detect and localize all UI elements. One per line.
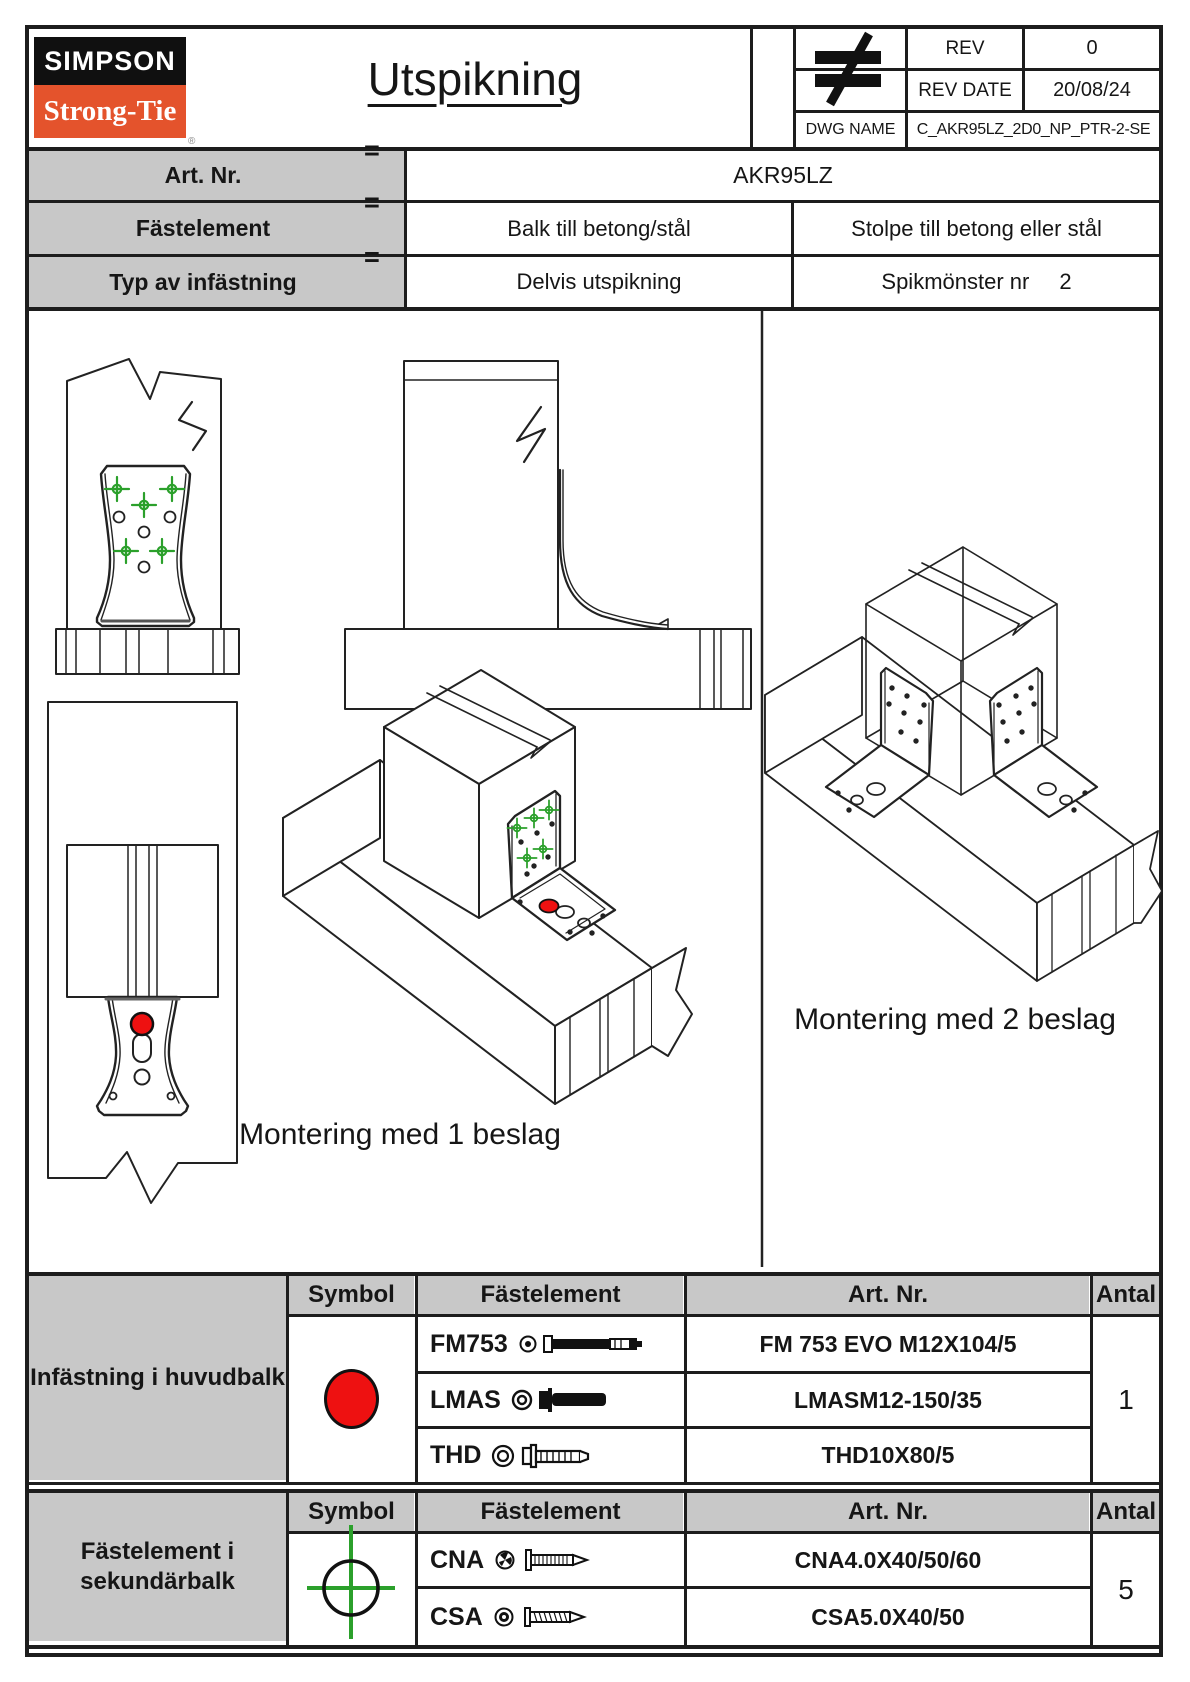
fastener-row-cna: CNA (418, 1534, 683, 1586)
rev-date-value: 20/08/24 (1025, 71, 1159, 110)
caption-two-brackets: Montering med 2 beslag (780, 1003, 1130, 1037)
rev-value: 0 (1025, 29, 1159, 68)
header-divider (750, 29, 753, 147)
strongtie-logo: Strong-Tie (34, 85, 186, 138)
simpson-logo: SIMPSON (34, 37, 186, 85)
art-nr-label: Art. Nr. (29, 151, 377, 200)
type-equals: = (364, 232, 394, 282)
table2-row-label: Fästelement i sekundärbalk (29, 1493, 286, 1641)
fm753-art-nr: FM 753 EVO M12X104/5 (687, 1317, 1089, 1371)
table1-art-header: Art. Nr. (687, 1276, 1089, 1314)
fastener-value-left: Balk till betong/stål (407, 203, 791, 254)
table2-qty-header: Antal (1093, 1493, 1159, 1531)
art-nr-equals: = (364, 127, 394, 176)
green-crosshair-icon (303, 1521, 399, 1643)
technical-drawing (28, 311, 1163, 1267)
t2-bottom-border (29, 1645, 1159, 1649)
thd-art-nr: THD10X80/5 (687, 1429, 1089, 1482)
table2-art-header: Art. Nr. (687, 1493, 1089, 1531)
table2-qty-value: 5 (1093, 1534, 1159, 1645)
registered-mark: ® (188, 136, 195, 147)
fm753-bolt-icon (518, 1328, 678, 1360)
nail-pattern-label: Spikmönster nr (881, 269, 1029, 295)
t1-bottom-border (29, 1482, 1159, 1485)
fastener-value-right: Stolpe till betong eller stål (794, 203, 1159, 254)
lmas-anchor-icon (511, 1383, 671, 1417)
fastener-row-csa: CSA (418, 1589, 683, 1645)
bolt-position-marker (131, 1013, 153, 1035)
table1-qty-value: 1 (1093, 1317, 1159, 1482)
fastener-row-fm753: FM753 (418, 1317, 683, 1371)
table1-qty-header: Antal (1093, 1276, 1159, 1314)
cna-nail-icon (494, 1544, 654, 1576)
dwg-name-label: DWG NAME (796, 113, 905, 147)
csa-art-nr: CSA5.0X40/50 (687, 1589, 1089, 1645)
csa-screw-icon (493, 1601, 653, 1633)
front-view (56, 359, 239, 674)
lmas-art-nr: LMASM12-150/35 (687, 1374, 1089, 1426)
isometric-two-brackets (765, 547, 1162, 981)
bottom-view (48, 702, 237, 1203)
cna-art-nr: CNA4.0X40/50/60 (687, 1534, 1089, 1586)
thd-name: THD (430, 1441, 481, 1470)
caption-one-bracket: Montering med 1 beslag (230, 1118, 570, 1152)
fastener-row-thd: THD (418, 1429, 683, 1482)
art-nr-value: AKR95LZ (407, 151, 1159, 200)
nail-pattern-number: 2 (1059, 269, 1071, 295)
drawing-sheet: SIMPSON Strong-Tie ® Utspikning REV 0 RE… (0, 0, 1190, 1682)
thd-screw-icon (491, 1439, 651, 1473)
nail-pattern-cell: Spikmönster nr 2 (794, 257, 1159, 307)
bolt-position-marker-iso (540, 900, 559, 913)
dwg-name-value: C_AKR95LZ_2D0_NP_PTR-2-SE (908, 113, 1159, 147)
fastener-label: Fästelement (29, 203, 377, 254)
not-equal-icon (797, 30, 901, 108)
type-label: Typ av infästning (29, 257, 377, 307)
cna-name: CNA (430, 1546, 484, 1575)
fastener-equals: = (364, 178, 394, 229)
isometric-one-bracket (283, 670, 692, 1104)
page-title: Utspikning (205, 52, 745, 106)
side-view (345, 361, 751, 709)
red-circle-icon (324, 1369, 379, 1429)
rev-label: REV (908, 29, 1022, 68)
table1-symbol-header: Symbol (289, 1276, 414, 1314)
csa-name: CSA (430, 1603, 483, 1632)
table2-fastener-header: Fästelement (418, 1493, 683, 1531)
fastener-row-lmas: LMAS (418, 1374, 683, 1426)
table1-fastener-header: Fästelement (418, 1276, 683, 1314)
lmas-name: LMAS (430, 1386, 501, 1415)
rev-date-label: REV DATE (908, 71, 1022, 110)
table1-row-label: Infästning i huvudbalk (29, 1276, 286, 1480)
type-value-left: Delvis utspikning (407, 257, 791, 307)
fm753-name: FM753 (430, 1330, 508, 1359)
